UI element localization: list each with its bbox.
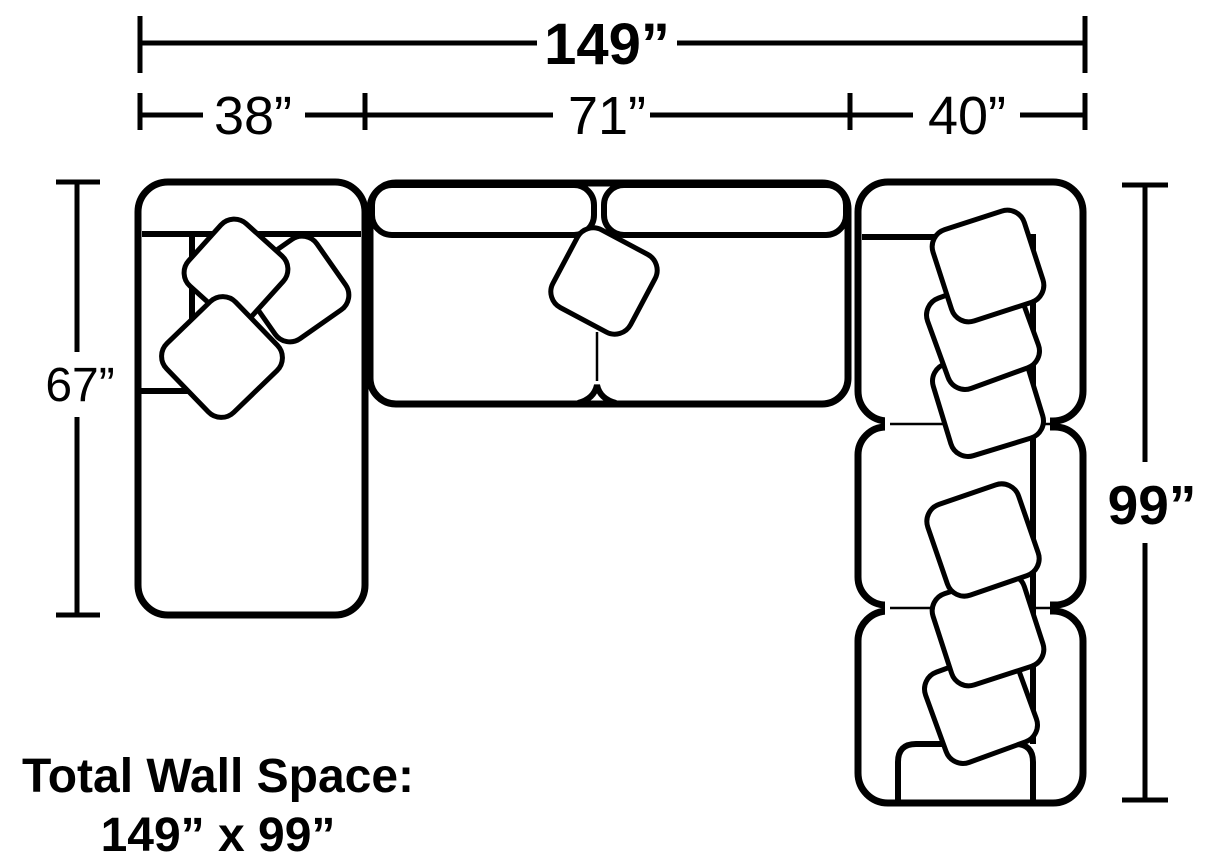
- back-cushion-right: [604, 185, 846, 235]
- segment-label-38: 38”: [214, 86, 292, 146]
- sectional-sofa-dimension-diagram: 149” 38” 71” 40” 67” 99” Total Wall Spac…: [0, 0, 1214, 863]
- back-cushion-left: [372, 185, 594, 235]
- right-depth-label: 99”: [1108, 474, 1197, 536]
- segment-label-40: 40”: [928, 86, 1006, 146]
- segment-label-71: 71”: [568, 86, 646, 146]
- left-depth-label: 67”: [45, 359, 114, 412]
- back-cushions: [372, 185, 846, 235]
- total-wall-space-title: Total Wall Space:: [22, 750, 414, 803]
- total-width-label: 149”: [544, 12, 670, 77]
- total-wall-space-value: 149” x 99”: [101, 809, 336, 862]
- diagram-canvas: 149” 38” 71” 40” 67” 99” Total Wall Spac…: [0, 0, 1214, 863]
